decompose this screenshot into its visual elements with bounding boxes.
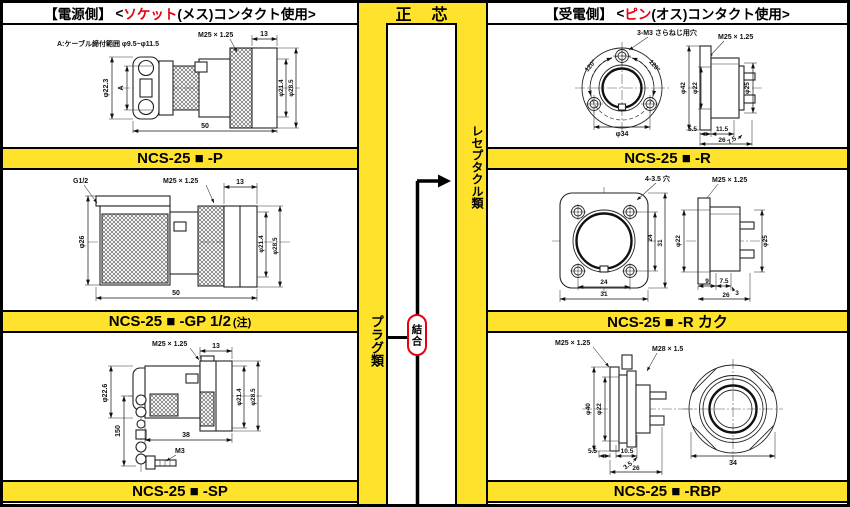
gp-dim-dia214: φ21.4 — [258, 235, 265, 253]
rk-dim-h31: 31 — [600, 291, 608, 298]
bar-label: NCS-25 ■ -SP — [132, 483, 228, 500]
rk-dim-dia22: φ22 — [675, 235, 682, 247]
rk-dim-3: 3 — [735, 290, 739, 297]
drawing-ncs25-p: A:ケーブル締付範囲 φ9.5~φ11.5 φ22.3 A M25 × 1.25 — [3, 25, 357, 147]
rk-dim-9: 9 — [705, 278, 709, 285]
arrow-right-icon — [438, 175, 451, 188]
p-dim-13: 13 — [260, 31, 268, 38]
p-side-view — [120, 48, 300, 128]
r-screw-hole — [585, 95, 603, 113]
receptacle-type-label: レセプタクル類 — [457, 125, 486, 209]
plug-type-label: プラグ類 — [359, 315, 386, 367]
header-left-post: (メス)コンタクト使用> — [177, 3, 315, 23]
rbp-thread2-label: M28 × 1.5 — [652, 346, 683, 353]
rbp-dim-26: 26 — [632, 465, 640, 472]
gp-dim-50: 50 — [172, 290, 180, 297]
sp-dim-38: 38 — [182, 432, 190, 439]
r-dim-115: 11.5 — [716, 126, 729, 133]
joint-badge: 結合 — [407, 314, 427, 356]
drawing-ncs25-rkaku: 24 31 24 31 4-3.5 穴 M25 × 1.25 φ22 — [488, 172, 847, 310]
rbp-dim-55: 5.5 — [588, 448, 597, 455]
header-core-title: 正 芯 — [357, 3, 488, 23]
p-dim-dia223: φ22.3 — [103, 79, 110, 98]
r-dim-dia22: φ22 — [692, 82, 699, 94]
drawing-ncs25-r: 120° 120° φ34 3-M3 さらねじ用穴 M25 × 1.25 φ42… — [488, 25, 847, 147]
rk-dim-h24: 24 — [600, 279, 608, 286]
gp-g-label: G1/2 — [73, 178, 88, 185]
r-dim-dia42: φ42 — [680, 82, 687, 94]
gp-dim-dia26: φ26 — [79, 235, 86, 248]
r-holes-note: 3-M3 さらねじ用穴 — [637, 28, 697, 37]
header-left-bracket: 【電源側】 — [44, 3, 112, 23]
sp-side-view — [128, 356, 262, 472]
label-bar-p: NCS-25 ■ -P — [3, 147, 357, 170]
p-dim-a: A — [118, 85, 125, 90]
drawing-ncs25-rbp: M25 × 1.25 M28 × 1.5 φ40 φ22 5.5 10.5 — [488, 335, 847, 480]
catalog-page: 【電源側】 <ソケット(メス)コンタクト使用> 正 芯 【受電側】 <ピン(オス… — [0, 0, 850, 507]
sp-dim-13: 13 — [212, 343, 220, 350]
sp-dim-dia214: φ21.4 — [236, 388, 243, 406]
drawing-ncs25-sp: M25 × 1.25 13 φ22.6 150 38 M3 φ21.4 φ28.… — [3, 335, 357, 480]
p-cable-range-note: A:ケーブル締付範囲 φ9.5~φ11.5 — [57, 39, 159, 48]
sp-dim-dia285: φ28.5 — [250, 388, 257, 406]
header-right-pre: < — [617, 6, 625, 21]
bar-label: NCS-25 ■ -P — [137, 150, 223, 167]
p-dim-50: 50 — [201, 123, 209, 130]
rk-holes-note: 4-3.5 穴 — [645, 174, 670, 183]
bar-label: NCS-25 ■ -RBP — [614, 483, 721, 500]
header-right-bracket: 【受電側】 — [545, 3, 613, 23]
mating-arrow-diagram — [388, 23, 455, 504]
gp-dim-13: 13 — [236, 179, 244, 186]
rbp-thread-label: M25 × 1.25 — [555, 340, 590, 347]
r-dim-dia34: φ34 — [616, 131, 629, 138]
rk-dim-v24: 24 — [647, 234, 654, 242]
p-dim-dia214: φ21.4 — [278, 79, 285, 97]
rbp-dim-dia22: φ22 — [596, 403, 603, 415]
bar-label: NCS-25 ■ -GP 1/2 — [109, 313, 231, 330]
rk-dim-v31: 31 — [657, 239, 664, 247]
rk-side-view: φ22 φ25 9 7.5 3 26 — [675, 198, 769, 302]
sp-thread-label: M25 × 1.25 — [152, 341, 187, 348]
rk-dim-26: 26 — [722, 292, 730, 299]
r-dim-dia25: φ25 — [744, 82, 751, 94]
rk-front-view: 24 31 24 31 — [552, 187, 668, 302]
label-bar-rbp: NCS-25 ■ -RBP — [488, 480, 847, 503]
rk-dim-dia25: φ25 — [762, 235, 769, 247]
r-angle-120-left: 120° — [583, 58, 598, 74]
label-bar-r: NCS-25 ■ -R — [488, 147, 847, 170]
sp-dim-dia226: φ22.6 — [102, 384, 109, 403]
sp-dim-150: 150 — [115, 425, 122, 437]
rbp-side-view: φ40 φ22 5.5 10.5 3.5 26 — [582, 355, 695, 475]
rbp-dim-dia40: φ40 — [585, 403, 592, 415]
header-right-post: (オス)コンタクト使用> — [651, 3, 789, 23]
bar-label: NCS-25 ■ -R — [624, 150, 711, 167]
rbp-front-view: 34 — [683, 359, 783, 467]
receptacle-type-strip: レセプタクル類 — [455, 23, 488, 504]
gp-dim-dia285: φ28.5 — [272, 237, 279, 255]
rbp-dim-105: 10.5 — [621, 448, 634, 455]
gp-thread-label: M25 × 1.25 — [163, 178, 198, 185]
r-front-view: 120° 120° φ34 — [575, 42, 669, 138]
header-right-highlight: ピン — [624, 3, 651, 23]
p-thread-label: M25 × 1.25 — [198, 32, 233, 39]
bar-note: (注) — [233, 314, 251, 330]
r-dim-55: 5.5 — [688, 126, 697, 133]
label-bar-rkaku: NCS-25 ■ -R カク — [488, 310, 847, 333]
label-bar-sp: NCS-25 ■ -SP — [3, 480, 357, 503]
r-screw-hole — [641, 95, 659, 113]
sp-m3-label: M3 — [175, 448, 185, 455]
plug-type-strip: プラグ類 — [357, 23, 388, 504]
r-dim-26: 26 — [718, 137, 726, 144]
r-side-view: φ42 φ22 φ25 5.5 11.5 7.5 26 — [680, 46, 762, 146]
header-receive-side: 【受電側】 <ピン(オス)コンタクト使用> — [488, 3, 847, 23]
rk-dim-75: 7.5 — [719, 278, 728, 285]
p-dim-dia285: φ28.5 — [288, 79, 295, 97]
drawing-ncs25-gp: G1/2 M25 × 1.25 13 φ26 φ21.4 φ28.5 50 — [3, 172, 357, 310]
r-screw-hole — [613, 47, 631, 65]
label-bar-gp: NCS-25 ■ -GP 1/2(注) — [3, 310, 357, 333]
r-dim-75: 7.5 — [726, 135, 738, 146]
rbp-dim-34: 34 — [729, 460, 737, 467]
rk-thread-label: M25 × 1.25 — [712, 177, 747, 184]
r-thread-label: M25 × 1.25 — [718, 34, 753, 41]
header-left-pre: < — [116, 6, 124, 21]
header-power-side: 【電源側】 <ソケット(メス)コンタクト使用> — [3, 3, 357, 23]
header-left-highlight: ソケット — [123, 3, 177, 23]
bar-label: NCS-25 ■ -R カク — [607, 311, 728, 332]
